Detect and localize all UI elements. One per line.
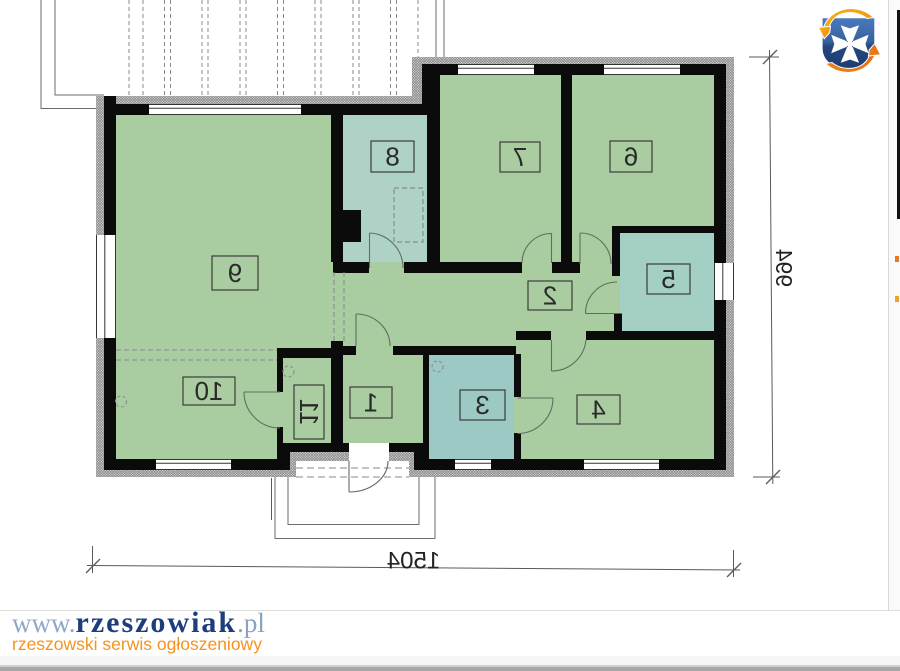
svg-text:6: 6: [624, 142, 638, 172]
svg-text:10: 10: [195, 376, 224, 406]
svg-text:2: 2: [543, 281, 557, 311]
svg-text:8: 8: [385, 142, 399, 172]
svg-text:9: 9: [228, 258, 242, 288]
svg-text:994: 994: [771, 249, 797, 288]
svg-text:5: 5: [661, 264, 675, 294]
svg-text:11: 11: [294, 399, 324, 426]
svg-text:4: 4: [591, 395, 605, 425]
svg-text:1: 1: [364, 388, 378, 418]
svg-text:7: 7: [513, 142, 527, 172]
svg-text:1504: 1504: [387, 548, 440, 575]
svg-text:3: 3: [475, 390, 489, 420]
